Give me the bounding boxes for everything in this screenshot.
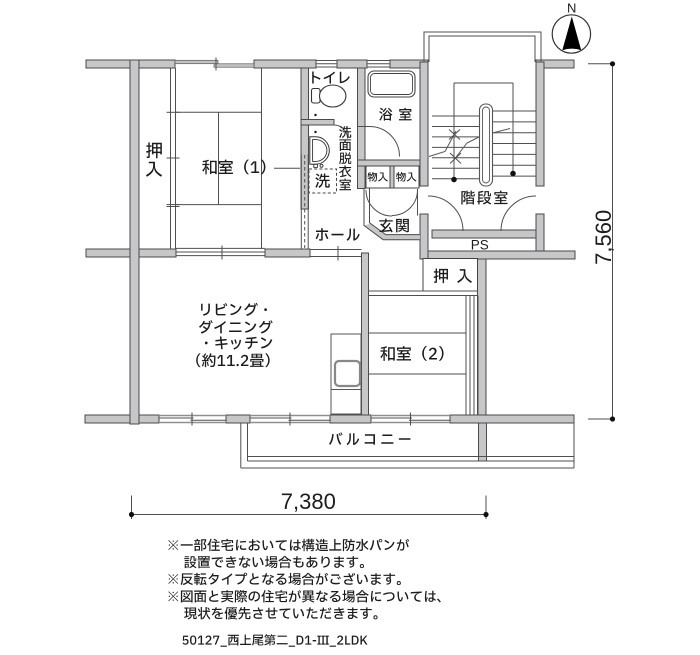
svg-text:7,560: 7,560 <box>591 210 616 265</box>
svg-text:N: N <box>567 1 576 16</box>
svg-text:7,380: 7,380 <box>281 489 336 514</box>
svg-text:PS: PS <box>471 237 489 252</box>
